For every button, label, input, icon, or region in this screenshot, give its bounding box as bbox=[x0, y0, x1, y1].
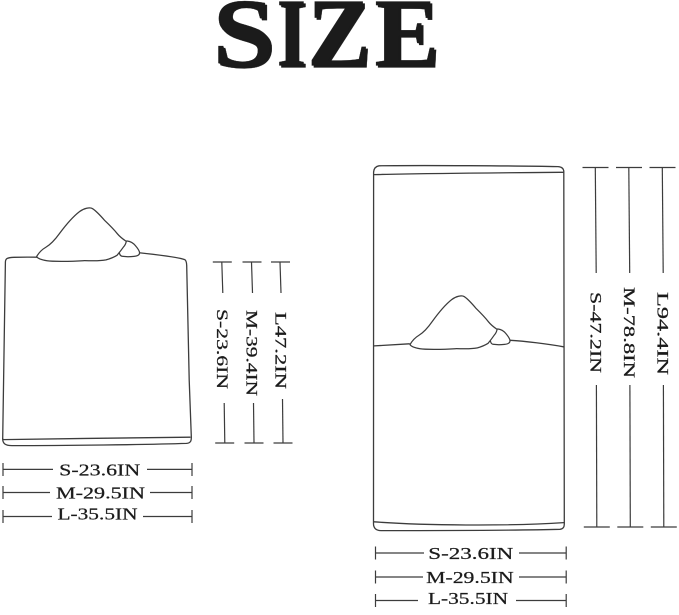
svg-text:Z: Z bbox=[307, 0, 370, 87]
svg-text:S: S bbox=[213, 0, 275, 87]
svg-text:M-39.4IN: M-39.4IN bbox=[243, 310, 260, 397]
svg-text:S-47.2IN: S-47.2IN bbox=[586, 292, 603, 374]
svg-text:M-78.8IN: M-78.8IN bbox=[620, 287, 637, 379]
svg-text:M-29.5IN: M-29.5IN bbox=[56, 484, 145, 503]
svg-text:S-23.6IN: S-23.6IN bbox=[59, 461, 140, 480]
svg-text:L94.4IN: L94.4IN bbox=[653, 292, 670, 376]
svg-text:M-29.5IN: M-29.5IN bbox=[426, 568, 514, 587]
svg-text:L47.2IN: L47.2IN bbox=[272, 312, 289, 390]
svg-text:E: E bbox=[374, 0, 439, 88]
svg-text:L-35.5IN: L-35.5IN bbox=[428, 589, 508, 608]
svg-text:I: I bbox=[277, 0, 306, 87]
svg-text:L-35.5IN: L-35.5IN bbox=[58, 505, 138, 524]
svg-text:S-23.6IN: S-23.6IN bbox=[428, 544, 513, 563]
svg-text:S-23.6IN: S-23.6IN bbox=[213, 309, 230, 390]
